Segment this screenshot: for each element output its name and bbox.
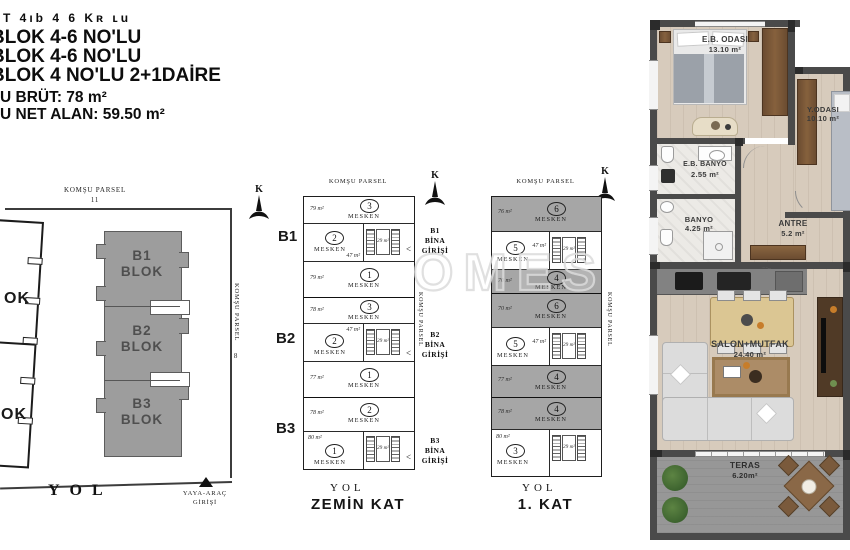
column: [650, 20, 660, 30]
kat1-road-label: YOL: [522, 482, 557, 494]
window: [695, 21, 765, 27]
balcony-door: [695, 451, 825, 457]
dresser: [692, 117, 738, 136]
b2-entrance-label: B2BİNAGİRİŞİ: [416, 330, 454, 360]
entry-arrow: <: [406, 452, 411, 462]
column: [788, 20, 795, 32]
site-block-b3: B3BLOK: [104, 396, 180, 427]
window: [649, 60, 658, 110]
bathroom-vanity: [698, 146, 732, 161]
wall: [795, 67, 850, 74]
watermark: OMES: [413, 243, 606, 303]
column: [650, 450, 662, 457]
north-letter: K: [592, 166, 618, 177]
b3-entrance-label: B3BİNAGİRİŞİ: [416, 436, 454, 466]
zemin-b2-label: B2: [276, 330, 295, 347]
stairs: 29 m²: [366, 229, 400, 256]
unit-row-entry: 2 MESKEN 47 m² 29 m²: [304, 323, 414, 361]
ground-floor-plan: 3 MESKEN 79 m² 2 MESKEN 47 m² 29 m² 1 ME…: [303, 196, 415, 470]
unit-row: 1 MESKEN 77 m²: [304, 361, 414, 397]
neighbor-block-label-1: OK: [4, 290, 30, 308]
plant: [662, 465, 688, 491]
sink: [660, 201, 674, 213]
wall: [735, 138, 741, 268]
zemin-b3-label: B3: [276, 420, 295, 437]
site-block-jag: [179, 318, 189, 334]
unit-row: 1 MESKEN 79 m²: [304, 261, 414, 297]
site-block-jag: [179, 252, 189, 268]
site-parcel-top-label: KOMŞU PARSEL: [40, 186, 150, 194]
site-boundary-right: [230, 208, 232, 478]
unit-row: 6 MESKEN 76 m²: [492, 197, 601, 231]
site-parcel-right-label: KOMŞU PARSEL: [233, 283, 240, 341]
unit-row-entry: 2 MESKEN 47 m² 29 m²: [304, 223, 414, 261]
header-scribble: T 4ıb 4 6 Kʀ ʟu: [3, 11, 131, 25]
washing-machine: [661, 169, 675, 183]
rug: [712, 357, 790, 397]
wall: [650, 533, 850, 540]
column: [795, 67, 803, 74]
site-block-jag: [96, 286, 106, 301]
entry-arrow: <: [406, 348, 411, 358]
north-letter: K: [246, 184, 272, 195]
zemin-parcel-top: KOMŞU PARSEL: [303, 178, 413, 185]
banyo-label: BANYO4.25 m²: [673, 215, 725, 234]
site-block-divider: [104, 306, 180, 307]
header-line-3: BLOK 4 NO'LU 2+1DAİRE: [0, 65, 221, 87]
shower: [703, 231, 733, 260]
zemin-title: ZEMİN KAT: [303, 496, 413, 513]
north-arrow: K: [422, 170, 448, 212]
chair: [717, 290, 735, 301]
column: [843, 450, 850, 460]
tv-unit: [817, 297, 843, 397]
site-entrance-line2: GİRİŞİ: [181, 499, 229, 506]
toilet: [660, 229, 673, 246]
site-boundary-bottom: [0, 481, 232, 489]
zemin-road-label: YOL: [330, 482, 365, 494]
floorplan-sheet: T 4ıb 4 6 Kʀ ʟu BLOK 4-6 NO'LU BLOK 4-6 …: [0, 0, 850, 550]
plant: [662, 497, 688, 523]
unit-row: 4 MESKEN 77 m²: [492, 365, 601, 397]
stairs: 29 m²: [552, 435, 586, 462]
wall: [650, 138, 745, 144]
shoe-bench: [750, 245, 806, 260]
north-arrow-icon: [247, 195, 271, 221]
eb-odasi-label: E.B. ODASI13.10 m²: [680, 35, 770, 54]
nightstand: [659, 31, 671, 43]
neighbor-building: [0, 213, 44, 468]
site-entrance-line1: YAYA-ARAÇ: [181, 490, 229, 497]
neighbor-block-label-2: OK: [1, 406, 27, 424]
header-brut: U BRÜT: 78 m²: [0, 89, 107, 107]
wall: [650, 194, 738, 199]
unit-row: 3 MESKEN 79 m²: [304, 197, 414, 223]
column: [735, 138, 743, 146]
kat1-parcel-right: KOMŞU PARSEL: [606, 292, 612, 347]
north-arrow: K: [246, 184, 272, 226]
site-block-notch: [150, 300, 190, 315]
kat1-title: 1. KAT: [491, 496, 600, 513]
toilet: [661, 146, 674, 163]
header-net: U NET ALAN: 59.50 m²: [0, 106, 165, 124]
entrance-arrow-icon: [199, 477, 213, 487]
window: [649, 165, 658, 191]
unit-row-entry: 5 MESKEN 47 m² 29 m²: [492, 327, 601, 365]
window: [649, 217, 658, 255]
stairs: 29 m²: [366, 329, 400, 356]
column: [650, 262, 660, 269]
chair: [769, 290, 787, 301]
salon-label: SALON+MUTFAK24.40 m²: [695, 339, 805, 360]
entry-arrow: <: [406, 244, 411, 254]
y-odasi-label: Y.ODASI10.10 m²: [797, 105, 849, 124]
site-block-divider: [104, 380, 180, 381]
wall: [788, 20, 795, 145]
chair: [743, 290, 761, 301]
site-road-label: YOL: [48, 482, 113, 500]
site-block-b1: B1BLOK: [104, 248, 180, 279]
north-arrow-icon: [423, 181, 447, 207]
unit-row: 3 MESKEN 78 m²: [304, 297, 414, 323]
antre-label: ANTRE5.2 m²: [763, 219, 823, 238]
site-parcel-top-no: 11: [40, 196, 150, 204]
apartment-plan: E.B. ODASI13.10 m² Y.ODASI10.10 m² E.B. …: [645, 5, 850, 550]
sofa: [662, 397, 794, 441]
column: [843, 262, 850, 272]
site-boundary-top: [5, 208, 231, 210]
eb-banyo-label: E.B. BANYO2.55 m²: [675, 161, 735, 179]
stairs: 29 m²: [552, 333, 586, 360]
window: [649, 335, 658, 395]
unit-row-entry: 3 MESKEN 80 m² 29 m²: [492, 429, 601, 476]
unit-row: 4 MESKEN 78 m²: [492, 397, 601, 429]
site-block-b2: B2BLOK: [104, 323, 180, 354]
zemin-b1-label: B1: [278, 228, 297, 245]
unit-row: 2 MESKEN 78 m²: [304, 397, 414, 431]
first-floor-plan: 6 MESKEN 76 m² 5 MESKEN 47 m² 29 m² 4 ME…: [491, 196, 602, 477]
site-parcel-right-no: 8: [231, 352, 241, 360]
north-letter: K: [422, 170, 448, 181]
teras-label: TERAS6.20m²: [710, 460, 780, 480]
unit-row-entry: 1 MESKEN 80 m² 29 m²: [304, 431, 414, 469]
kat1-parcel-top: KOMŞU PARSEL: [491, 178, 600, 185]
wall: [650, 262, 845, 269]
stairs: 29 m²: [366, 436, 400, 463]
